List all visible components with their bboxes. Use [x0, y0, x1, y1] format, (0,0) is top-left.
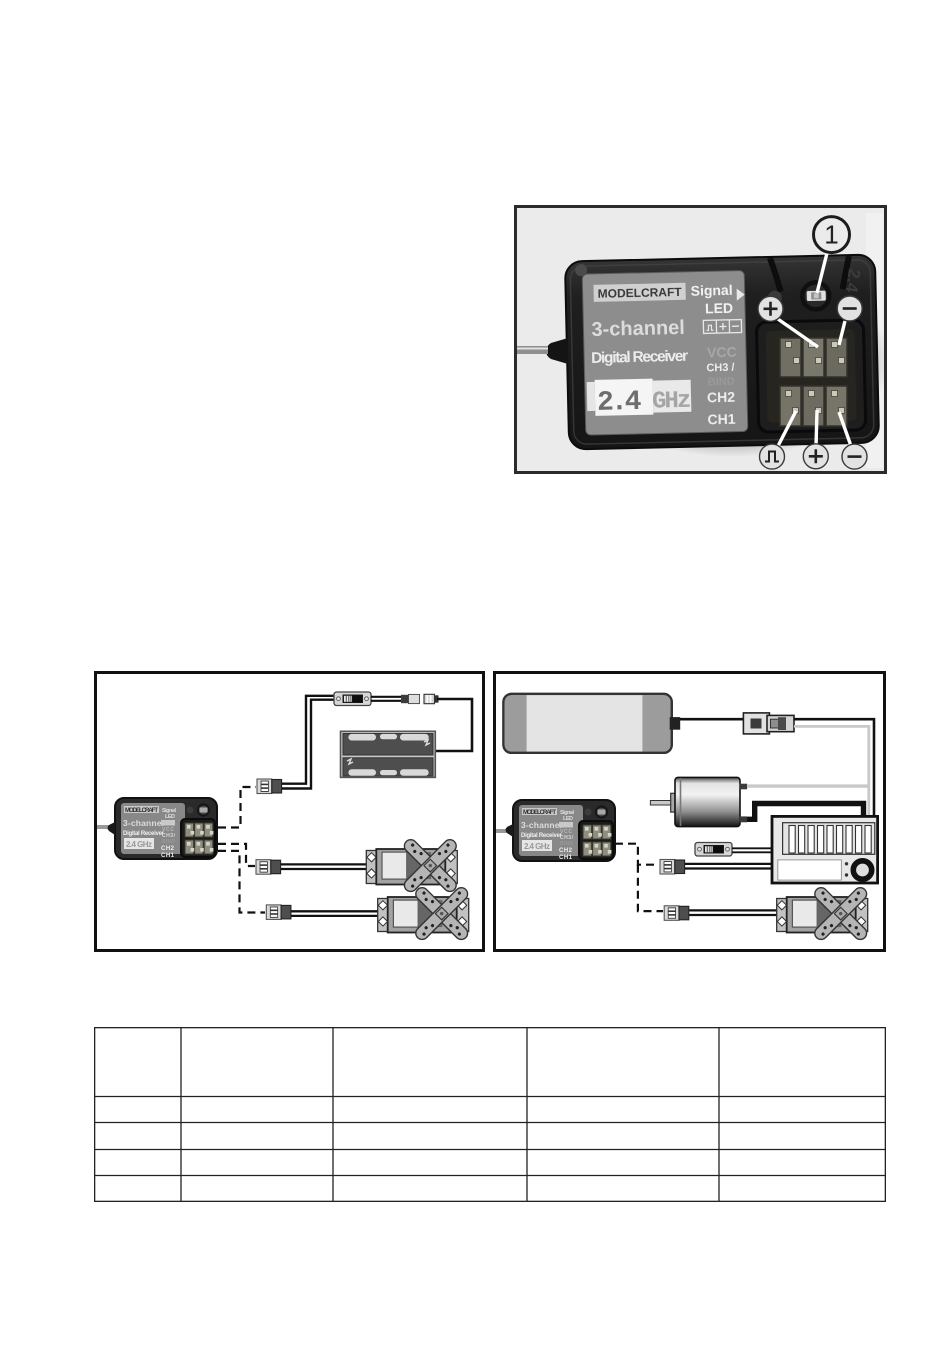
svg-text:CH3 /: CH3 /: [706, 362, 734, 375]
svg-text:CH2: CH2: [707, 389, 736, 406]
svg-text:LED: LED: [705, 300, 733, 317]
svg-text:1: 1: [824, 220, 838, 250]
svg-text:CH1: CH1: [707, 411, 736, 428]
svg-text:2.4: 2.4: [597, 387, 641, 419]
svg-text:3-channel: 3-channel: [591, 317, 685, 341]
svg-text:MODELCRAFT: MODELCRAFT: [598, 285, 683, 301]
svg-text:Signal: Signal: [690, 282, 732, 299]
svg-text:GHz: GHz: [652, 388, 690, 416]
svg-text:BIND: BIND: [708, 376, 735, 389]
svg-text:2.4: 2.4: [842, 267, 864, 294]
svg-text:VCC: VCC: [707, 344, 737, 361]
svg-text:Digital Receiver: Digital Receiver: [591, 348, 688, 367]
